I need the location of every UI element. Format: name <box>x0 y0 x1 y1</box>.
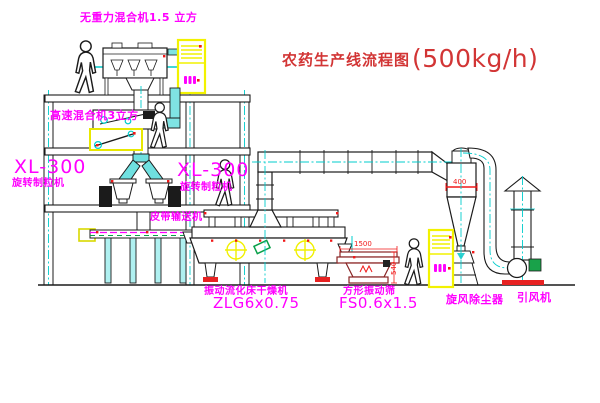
label-mid-granulator-model: XL-300 <box>177 161 249 181</box>
label-top-mixer: 无重力混合机1.5 立方 <box>80 12 197 24</box>
fan-base <box>502 280 544 285</box>
label-belt-conveyor: 皮带输送机 <box>150 213 203 224</box>
cad-marker-dot <box>448 267 451 270</box>
title-text: 农药生产线流程图 <box>282 49 410 73</box>
cad-marker-dot <box>96 231 98 233</box>
cad-marker-dot <box>199 45 202 48</box>
cad-flow-diagram: 无重力混合机1.5 立方 农药生产线流程图 (500kg/h) 高速混合机3立方… <box>0 0 600 403</box>
dryer-trough <box>190 238 347 263</box>
fan-motor <box>529 259 541 271</box>
label-left-granulator-name: 旋转制粒机 <box>12 179 65 190</box>
person-top-floor <box>75 41 95 93</box>
cad-marker-dot <box>472 251 474 253</box>
cad-marker-dot <box>146 231 148 233</box>
dim-cyclone-band: 400 <box>453 179 466 186</box>
belt-conveyor <box>79 229 192 283</box>
label-fan: 引风机 <box>517 292 552 304</box>
cad-marker-dot <box>133 132 136 135</box>
label-screen-model: FS0.6x1.5 <box>339 296 418 312</box>
label-left-granulator-model: XL-300 <box>14 158 86 178</box>
screen-outlet <box>383 260 390 267</box>
dryer-foot-pad <box>315 277 330 282</box>
cad-marker-dot <box>197 79 200 82</box>
label-second-mixer: 高速混合机3立方 <box>50 110 139 122</box>
person-ground <box>405 239 423 285</box>
dryer-foot-pad <box>203 277 218 282</box>
dim-screen-height: 540 <box>391 262 398 275</box>
label-cyclone: 旋风除尘器 <box>446 294 504 306</box>
cad-marker-dot <box>111 180 113 182</box>
dim-screen-length: 1500 <box>354 241 372 248</box>
control-cabinet-top <box>178 40 205 93</box>
control-cabinet-bottom <box>429 230 453 287</box>
diagram-title: 农药生产线流程图 (500kg/h) <box>282 44 538 73</box>
cabinet-glyphs <box>434 264 446 272</box>
rotary-granulators <box>99 179 181 207</box>
cabinet-glyphs <box>184 76 196 84</box>
granulator-motor-left <box>99 186 112 207</box>
dryer-hood <box>192 227 345 238</box>
cad-marker-dot <box>353 256 355 258</box>
label-dryer-model: ZLG6x0.75 <box>213 296 300 312</box>
mixer-discharge-hopper <box>126 78 154 90</box>
gravity-free-mixer <box>95 43 183 95</box>
cad-marker-dot <box>167 180 169 182</box>
title-capacity: (500kg/h) <box>412 44 538 73</box>
elevator-down-chute <box>170 88 180 118</box>
label-mid-granulator-name: 旋转制粒机 <box>180 183 233 194</box>
cad-marker-dot <box>449 236 452 239</box>
